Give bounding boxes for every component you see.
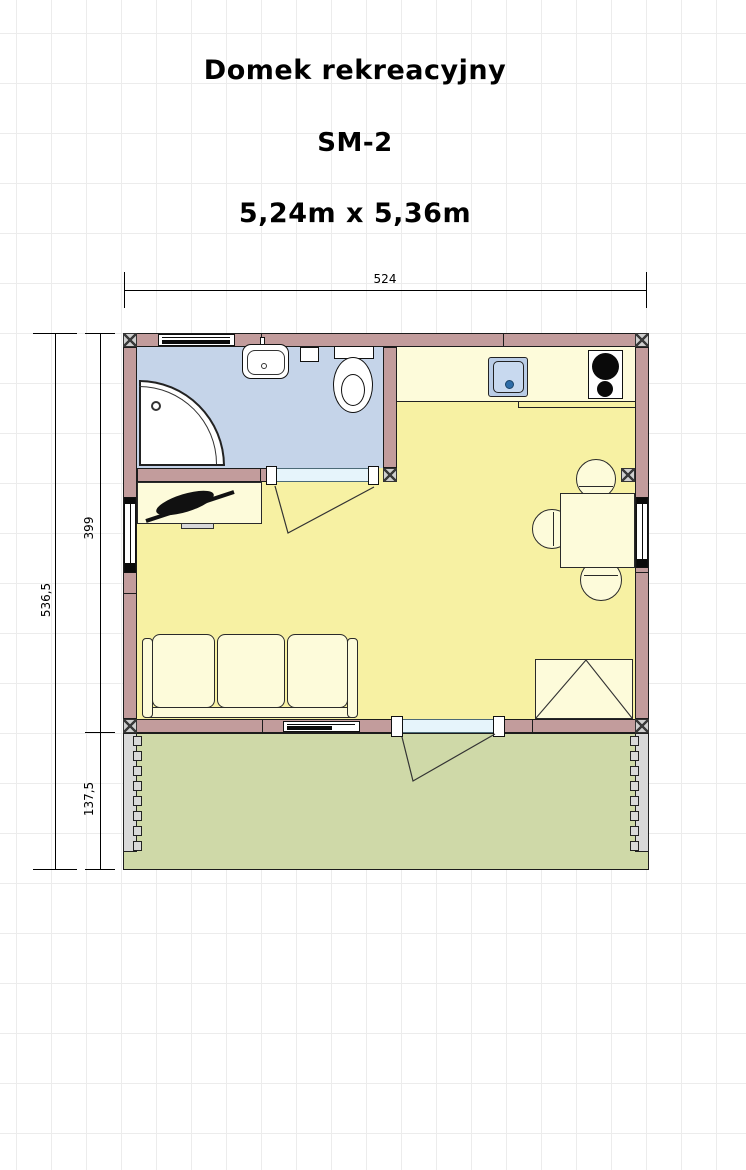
dim-tick [33,869,77,870]
wall-joint [123,593,137,594]
railing-post [133,736,142,746]
washbasin-basin [247,350,285,375]
sofa-backrest [145,707,355,718]
sofa-cushion [287,634,348,708]
sofa-cushion [152,634,215,708]
chair-backrest-line [584,575,618,576]
corner-post-icon [383,468,397,482]
wall-joint [503,333,504,347]
railing-post [630,811,639,821]
model-name: SM-2 [0,128,710,158]
railing-post [630,766,639,776]
overall-dimensions-text: 5,24m x 5,36m [0,198,710,229]
sofa-armrest-left [142,638,153,718]
railing-post [630,796,639,806]
railing-post [133,811,142,821]
sofa-cushion [217,634,285,708]
chair-backrest-line [579,486,613,487]
tv-cabinet [137,482,262,524]
washbasin-drain [261,363,267,369]
terrace-floor [123,733,649,870]
dim-line-building-terrace [100,333,101,870]
railing-post [133,766,142,776]
dim-tick [646,272,647,308]
dim-tick [85,869,115,870]
dim-label-total-height: 536,5 [39,583,53,617]
stove-burner-large [592,353,619,380]
window-frame-line [162,337,230,338]
railing-post [630,826,639,836]
corner-post-icon [123,719,137,733]
railing-post [133,841,142,851]
bathroom-shelf [300,347,319,362]
page-title: Domek rekreacyjny [0,55,710,86]
door-jamb [368,466,379,485]
railing-post [133,781,142,791]
wall-bathroom-kitchen [383,347,397,468]
window-frame-bar [125,563,135,572]
railing-post [630,841,639,851]
sofa-armrest-right [347,638,358,718]
kitchen-sink-drain [505,380,514,389]
stove-burner-small [597,381,613,397]
wall-joint [532,719,533,733]
cabinet-drawer [181,523,214,529]
dim-line-total-height [55,333,56,870]
window-south [283,721,360,732]
window-north [158,334,235,346]
railing-post [630,751,639,761]
wall-joint [260,468,261,482]
window-frame-line [642,504,643,559]
corner-post-icon [635,719,649,733]
corner-post-icon [621,468,635,482]
door-jamb [266,466,277,485]
shower-drain [151,401,161,411]
window-frame-bar [287,726,332,730]
window-east [636,497,648,568]
railing-post [133,751,142,761]
dim-tick [33,333,77,334]
door-jamb [391,716,403,737]
dim-tick [85,732,115,733]
window-frame-bar [162,340,230,344]
wardrobe [535,659,633,719]
dim-line-width [124,290,647,291]
door-jamb [493,716,505,737]
chair-backrest-line [553,512,554,546]
railing-post [133,826,142,836]
railing-post [630,736,639,746]
wall-joint [635,572,649,573]
wall-bathroom-south [137,468,268,482]
wall-joint [262,719,263,733]
dim-label-terrace-depth: 137,5 [82,782,96,816]
window-frame-line [130,504,131,563]
wall-south [123,719,649,733]
corner-post-icon [123,333,137,347]
window-frame-bar [637,559,647,567]
floor-plan-page: { "header": { "title": "Domek rekreacyjn… [0,0,746,1170]
bathroom-door-threshold [268,468,379,482]
kitchen-counter-edge [518,402,635,408]
dim-label-building-height: 399 [82,517,96,540]
railing-post [133,796,142,806]
window-west [124,497,136,573]
dim-tick [85,333,115,334]
dim-tick [124,272,125,308]
window-frame-line [287,724,355,725]
toilet-bowl-inner [341,374,365,406]
dim-label-width: 524 [345,272,425,286]
railing-post [630,781,639,791]
corner-post-icon [635,333,649,347]
entry-door-threshold [402,719,496,733]
dining-table [560,493,635,568]
